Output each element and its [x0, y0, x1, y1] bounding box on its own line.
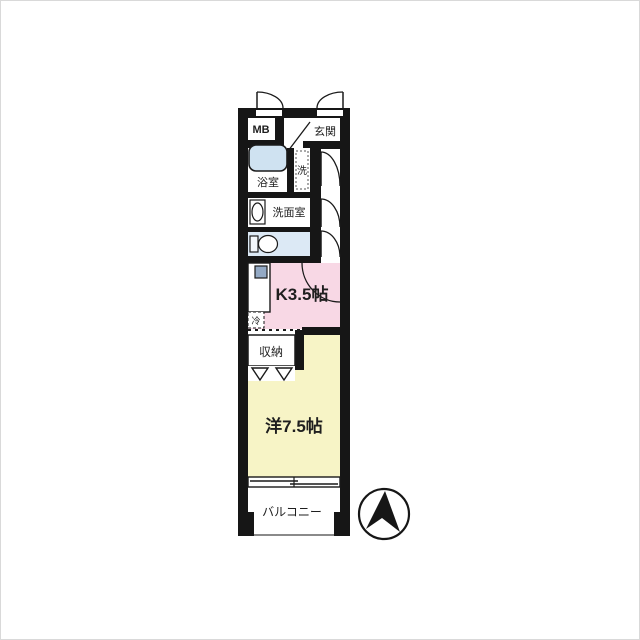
sliding-window-icon — [248, 477, 340, 487]
laundry-label: 洗 — [297, 165, 307, 177]
western-room-label: 洋7.5帖 — [265, 416, 323, 436]
toilet-icon — [250, 236, 278, 253]
washroom-label: 洗面室 — [273, 205, 306, 219]
sink-icon — [250, 200, 265, 224]
floorplan-image: MB 玄関 浴室 洗 洗面室 K3.5帖 冷 収納 洋7.5帖 バルコニー — [0, 0, 640, 640]
fridge-label: 冷 — [251, 315, 260, 326]
mb-label: MB — [252, 124, 269, 136]
meter-box-door — [257, 92, 283, 108]
bathroom-label: 浴室 — [257, 175, 279, 189]
entrance-label: 玄関 — [314, 124, 336, 138]
kitchen-counter-icon — [248, 263, 270, 312]
compass-icon — [359, 489, 409, 539]
closet-label: 収納 — [259, 345, 283, 359]
kitchen-label: K3.5帖 — [276, 284, 329, 304]
balcony-label: バルコニー — [262, 505, 322, 519]
floorplan-svg: MB 玄関 浴室 洗 洗面室 K3.5帖 冷 収納 洋7.5帖 バルコニー — [0, 0, 640, 640]
bathtub-icon — [249, 145, 287, 171]
entrance-door — [317, 92, 343, 108]
